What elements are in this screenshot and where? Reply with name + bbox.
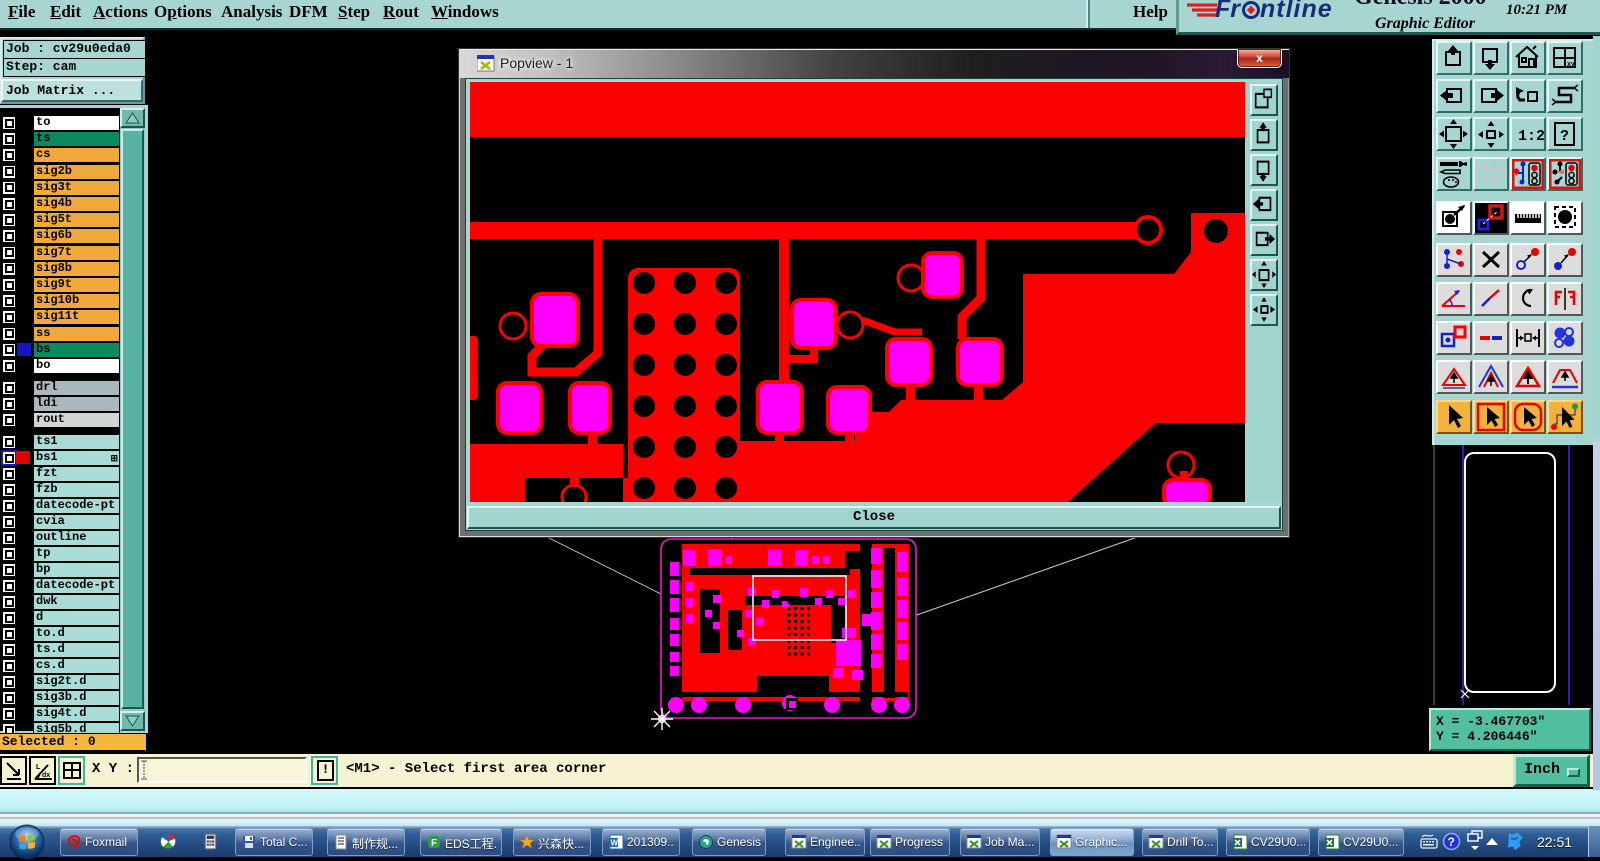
svg-text:1:2: 1:2 [1518, 128, 1544, 145]
svg-text:Graphic Editor: Graphic Editor [1375, 15, 1476, 32]
svg-text:Genesis 2000: Genesis 2000 [1354, 0, 1487, 10]
svg-text:L: L [36, 764, 41, 771]
svg-text:Fr: Fr [1215, 0, 1241, 23]
svg-text:10:21 PM: 10:21 PM [1506, 2, 1568, 18]
svg-text:dx: dx [42, 772, 50, 779]
svg-text:?: ? [1448, 835, 1455, 849]
svg-text:F: F [431, 838, 437, 849]
svg-text:ntline: ntline [1260, 0, 1333, 23]
svg-text:W: W [611, 839, 619, 848]
svg-text:?: ? [1560, 128, 1569, 145]
svg-text:xy: xy [1567, 61, 1575, 68]
